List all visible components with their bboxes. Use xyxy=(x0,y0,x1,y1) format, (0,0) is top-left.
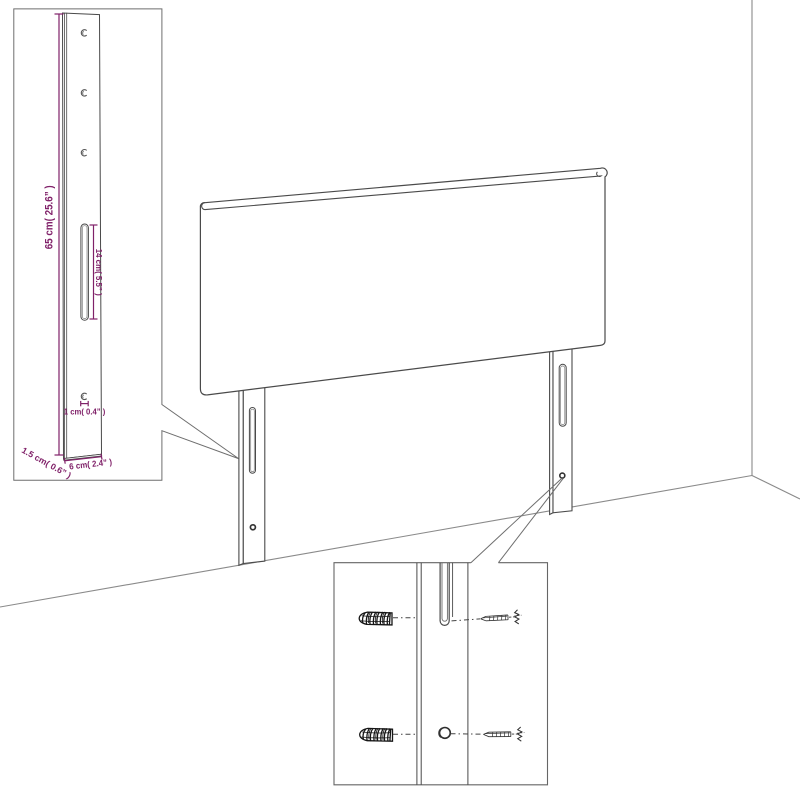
svg-text:1 cm( 0.4” ): 1 cm( 0.4” ) xyxy=(64,407,106,417)
svg-text:14 cm( 5.5” ): 14 cm( 5.5” ) xyxy=(94,249,104,296)
svg-text:65 cm( 25.6” ): 65 cm( 25.6” ) xyxy=(44,185,56,249)
